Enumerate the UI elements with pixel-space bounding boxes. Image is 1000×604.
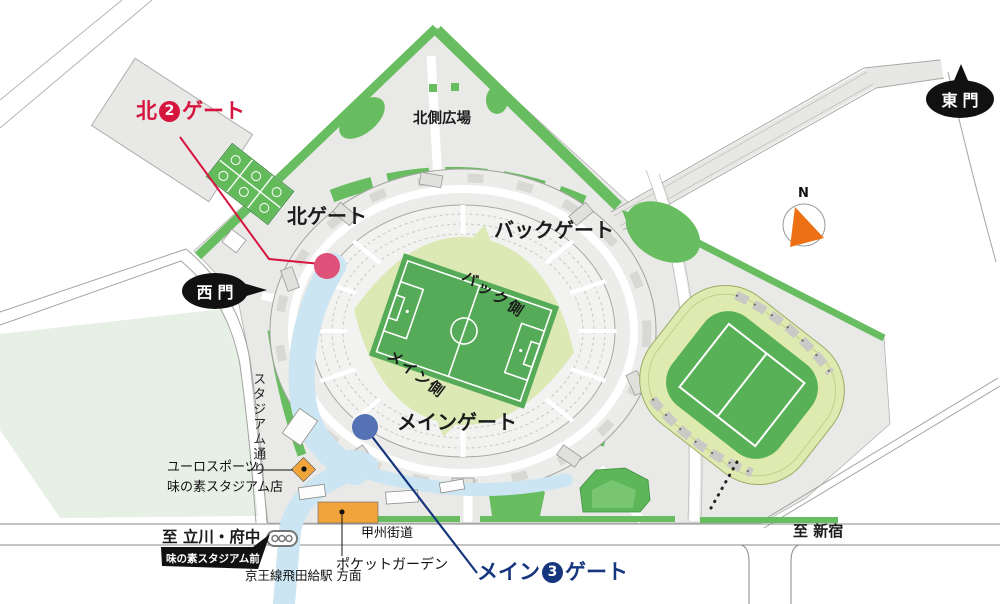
main3-gate-prefix: メイン bbox=[477, 561, 540, 584]
crossing-icon bbox=[267, 531, 297, 546]
back-gate-label: バックゲート bbox=[494, 219, 614, 241]
euro-sports-line2: 味の素スタジアム店 bbox=[167, 478, 283, 498]
north-gate-label: 北ゲート bbox=[287, 205, 367, 227]
north2-gate-label: 北 2 ゲート bbox=[136, 100, 245, 123]
euro-sports-line1: ユーロスポーツ bbox=[167, 458, 283, 478]
east-gate-pointer bbox=[953, 64, 969, 83]
gate-number-3-badge: 3 bbox=[542, 562, 563, 583]
main3-gate-suffix: ゲート bbox=[565, 561, 628, 584]
to-tachikawa-label: 至 立川・府中 bbox=[162, 529, 260, 546]
compass-north-label: N bbox=[798, 187, 809, 201]
west-gate-pointer bbox=[243, 283, 267, 297]
euro-sports-label: ユーロスポーツ 味の素スタジアム店 bbox=[167, 458, 283, 497]
main3-gate-label: メイン 3 ゲート bbox=[477, 561, 628, 584]
bus-stop-label: 味の素スタジアム前 bbox=[166, 551, 260, 566]
west-gate-label: 西門 bbox=[196, 279, 238, 303]
gate-number-2-badge: 2 bbox=[159, 101, 180, 122]
north2-gate-suffix: ゲート bbox=[182, 100, 245, 123]
north-gate-marker bbox=[314, 253, 340, 279]
pocket-garden-label: ポケットガーデン bbox=[336, 558, 448, 573]
east-gate-badge: 東門 bbox=[926, 80, 994, 118]
koshu-kaido-label: 甲州街道 bbox=[361, 527, 413, 541]
stadium-area-map: 北 2 ゲート 北ゲート バックゲート メインゲート 北側広場 バック側 メイン… bbox=[0, 0, 1000, 604]
main-gate-label: メインゲート bbox=[397, 411, 517, 433]
east-gate-label: 東門 bbox=[941, 87, 983, 111]
main-gate-marker bbox=[352, 414, 378, 440]
north-plaza-label: 北側広場 bbox=[413, 112, 471, 128]
west-gate-badge: 西門 bbox=[182, 273, 248, 309]
compass-icon bbox=[783, 204, 825, 247]
north2-gate-prefix: 北 bbox=[136, 100, 157, 123]
to-shinjuku-label: 至 新宿 bbox=[793, 523, 843, 540]
